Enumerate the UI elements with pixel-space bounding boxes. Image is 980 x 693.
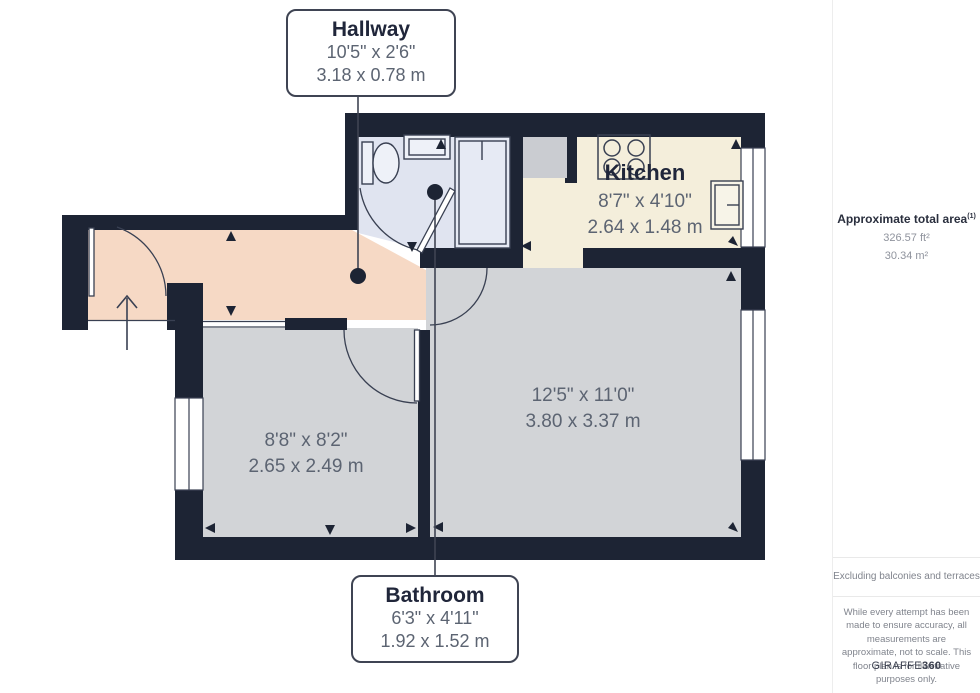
bathroom-leader-dot: [427, 184, 443, 200]
entrance-arrow-icon: [117, 296, 137, 350]
kitchen-title: Kitchen: [545, 161, 745, 185]
excluding-note: Excluding balconies and terraces: [833, 571, 980, 582]
info-sidebar: Approximate total area(1) 326.57 ft² 30.…: [832, 0, 980, 693]
hallway-leader-dot: [350, 268, 366, 284]
kitchen-label: Kitchen 8'7" x 4'10" 2.64 x 1.48 m: [545, 161, 745, 240]
bathroom-imperial-dimension: 6'3" x 4'11": [353, 607, 517, 630]
living-room-window: [741, 310, 765, 460]
brand-text: GIRAFFE: [871, 660, 921, 672]
living-room-label: 12'5" x 11'0" 3.80 x 3.37 m: [483, 383, 683, 434]
bedroom-imperial-dimension: 8'8" x 8'2": [206, 428, 406, 454]
total-area-block: Approximate total area(1) 326.57 ft² 30.…: [833, 212, 980, 262]
shower-icon: [455, 137, 510, 248]
hallway-callout-title: Hallway: [288, 18, 454, 41]
bedroom-label: 8'8" x 8'2" 2.65 x 2.49 m: [206, 428, 406, 479]
bathroom-callout-title: Bathroom: [353, 584, 517, 607]
hallway-imperial-dimension: 10'5" x 2'6": [288, 41, 454, 64]
living-room-metric-dimension: 3.80 x 3.37 m: [483, 409, 683, 435]
total-area-sqm: 30.34 m²: [833, 250, 980, 262]
bedroom-window: [175, 398, 203, 490]
toilet-icon: [362, 142, 399, 184]
kitchen-imperial-dimension: 8'7" x 4'10": [545, 189, 745, 215]
brand-text-bold: 360: [922, 660, 942, 672]
sidebar-divider-top: [833, 557, 980, 558]
floorplan-page: { "callouts": { "hallway": { "title": "H…: [0, 0, 980, 693]
total-area-sqft: 326.57 ft²: [833, 232, 980, 244]
bathroom-callout: Bathroom 6'3" x 4'11" 1.92 x 1.52 m: [351, 575, 519, 663]
total-area-footnote-marker: (1): [967, 213, 976, 220]
hallway-callout: Hallway 10'5" x 2'6" 3.18 x 0.78 m: [286, 9, 456, 97]
sidebar-divider-bottom: [833, 596, 980, 597]
total-area-title-text: Approximate total area: [837, 212, 967, 226]
kitchen-metric-dimension: 2.64 x 1.48 m: [545, 215, 745, 241]
giraffe360-logo: GIRAFFE360: [833, 660, 980, 672]
bedroom-metric-dimension: 2.65 x 2.49 m: [206, 454, 406, 480]
living-room-imperial-dimension: 12'5" x 11'0": [483, 383, 683, 409]
hallway-floor: [88, 230, 426, 320]
bathroom-metric-dimension: 1.92 x 1.52 m: [353, 630, 517, 653]
total-area-title: Approximate total area(1): [833, 212, 980, 226]
hallway-metric-dimension: 3.18 x 0.78 m: [288, 64, 454, 87]
disclaimer-text: While every attempt has been made to ens…: [841, 606, 972, 687]
